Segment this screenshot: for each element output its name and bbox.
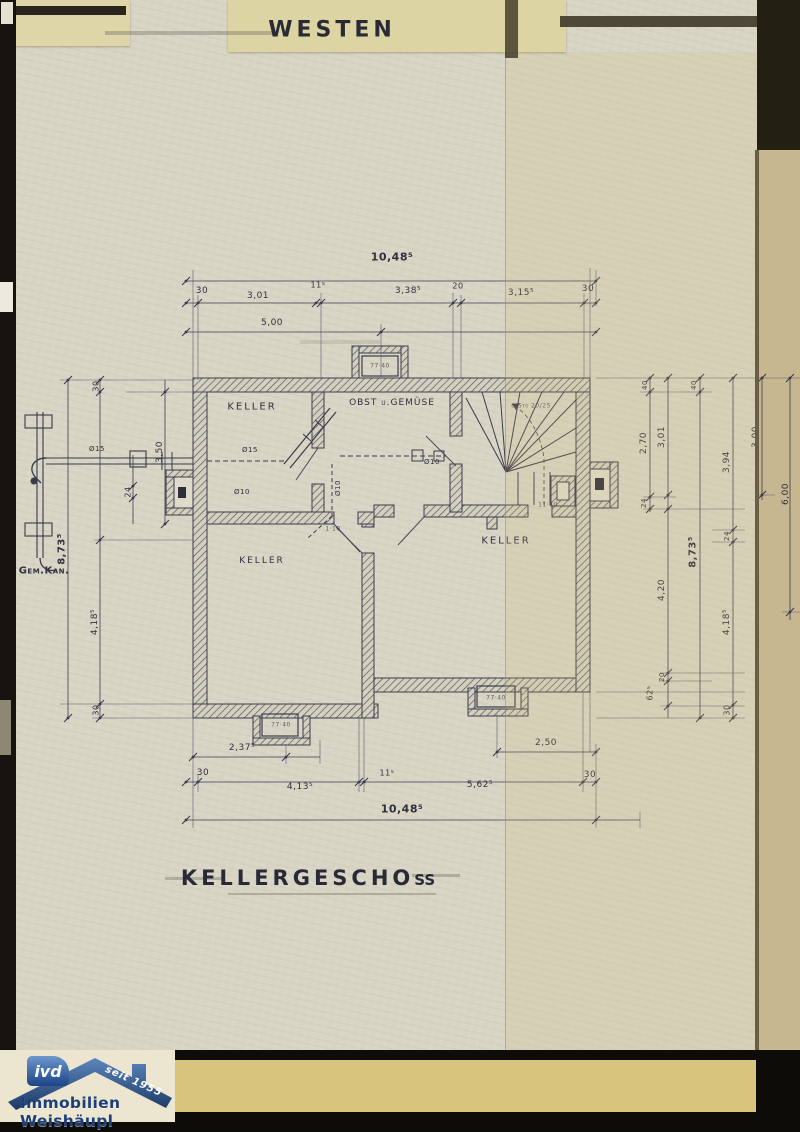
labels-layer: WESTEN KELLERGESCHOß KELLER OBST u.GEMÜS… [0,0,800,1132]
compass-title: WESTEN [268,18,396,43]
pipe-diameter-label: Ø10 [424,458,440,466]
dim-label: 2,37⁵ [229,743,255,753]
pipe-diameter-label: Ø15 [89,445,105,453]
room-label-keller-upper-left: KELLER [227,402,276,413]
dim-label: 11⁵ [380,769,395,778]
company-logo: ivd seit 1955 Immobilien Weishäupl [0,1050,175,1122]
edge-patch [1,2,13,24]
dim-label: 3,38⁵ [395,286,421,296]
stair-annotation: 6 Stg 20/25 [511,403,551,410]
dim-label: 3,94 [722,451,732,473]
dim-top-overall: 10,48⁵ [371,251,414,264]
dim-label: 4,20 [657,579,667,601]
dim-label: 3,01 [247,291,269,301]
pipe-diameter-label: Ø15 [242,446,258,454]
dim-label: 3,01 [657,426,667,448]
dim-label: 30 [582,284,594,294]
dim-label: 62⁵ [646,686,655,701]
top-streak [505,0,518,58]
sewer-label: Gem.Kan. [19,566,70,577]
seam-line-right [755,150,759,1050]
dim-label: 2,50 [535,738,557,748]
dim-bottom-overall: 10,48⁵ [381,803,424,816]
room-label-keller-lower-left: KELLER [239,556,285,566]
dim-label: 30 [196,286,208,296]
room-label-obst-gemuese: OBST u.GEMÜSE [349,398,435,408]
dim-label: 30 [197,768,209,778]
dim-label: 40 [690,380,698,390]
scanned-floorplan-page: WESTEN KELLERGESCHOß KELLER OBST u.GEMÜS… [0,0,800,1132]
dim-label: 4,18⁵ [722,609,732,635]
dim-label: 20 [452,282,463,291]
bottom-right-dark [756,1050,800,1132]
pipe-diameter-label: Ø10 [334,480,342,496]
edge-patch [0,700,11,755]
left-edge-shadow [0,0,16,1132]
dim-label: 24 [124,486,133,497]
company-name: Immobilien Weishäupl [20,1094,175,1130]
dim-label: 8,73⁵ [688,536,699,568]
dim-label: 30 [723,704,732,715]
dim-label: 40 [641,380,649,390]
dim-label: 30 [584,770,596,780]
dim-label: 24 [640,498,648,508]
dim-label: 30 [92,704,101,715]
dim-label: 8,73⁵ [57,533,68,565]
dim-label: 5,62⁵ [467,780,493,790]
dim-label: 4,18⁵ [90,609,100,635]
dim-label: 6,00 [781,483,791,505]
dim-label: 30 [92,380,101,391]
edge-patch [0,282,13,312]
room-label-keller-right: KELLER [481,536,530,547]
corner-dark-top-right [757,0,800,150]
top-streak [16,6,126,15]
opening-size-label: 11·40 [538,502,558,509]
dim-label: 5,00 [261,318,283,328]
opening-size-label: 1·10 [325,526,340,533]
dim-label: 3,15⁵ [508,288,534,298]
pipe-diameter-label: Ø10 [234,488,250,496]
dim-label: 11⁵ [311,281,326,290]
dim-label: 2,70 [639,432,649,454]
dim-label: 3,50 [155,441,165,463]
lightwell-label: 77·40 [486,695,506,702]
lightwell-label: 77·40 [271,722,291,729]
floor-title: KELLERGESCHOß [181,866,439,890]
dim-label: 4,13⁵ [287,782,313,792]
ivd-badge: ivd [27,1056,69,1086]
bottom-mustard-strip [172,1060,760,1112]
dim-label: 24 [723,531,731,541]
dim-label: 20 [658,672,666,682]
lightwell-label: 77·40 [370,363,390,370]
